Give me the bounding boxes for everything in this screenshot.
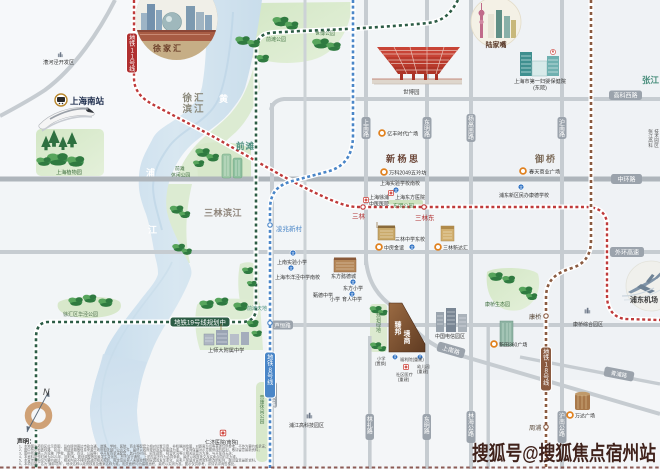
svg-text:沪南路: 沪南路 — [559, 119, 565, 139]
svg-text:臻邦: 臻邦 — [395, 320, 402, 336]
svg-text:上海东方医院: 上海东方医院 — [395, 194, 425, 201]
svg-text:搜狐号@搜狐焦点宿州站: 搜狐号@搜狐焦点宿州站 — [472, 441, 656, 465]
svg-text:浦江高科技园区: 浦江高科技园区 — [289, 422, 324, 429]
svg-text:新杨思: 新杨思 — [386, 153, 421, 164]
svg-text:林礼路: 林礼路 — [367, 416, 373, 436]
svg-text:上海实验学校南校: 上海实验学校南校 — [380, 180, 420, 187]
svg-text:上南实验小学: 上南实验小学 — [277, 259, 307, 266]
svg-text:康桥: 康桥 — [529, 313, 541, 321]
svg-text:(东院): (东院) — [533, 84, 547, 92]
svg-text:东明公园: 东明公园 — [393, 202, 414, 210]
svg-text:育人中学: 育人中学 — [342, 296, 362, 303]
svg-text:春天商业广场: 春天商业广场 — [529, 168, 560, 176]
svg-text:普康休闲公园: 普康休闲公园 — [260, 394, 265, 425]
svg-text:地铁19号线规划中: 地铁19号线规划中 — [174, 318, 226, 327]
svg-text:黄: 黄 — [219, 93, 228, 104]
svg-text:6、本项目推广名为"臻邦境商"，地块名称以政府核准及备案名称: 6、本项目推广名为"臻邦境商"，地块名称以政府核准及备案名称为准。相关面积均为建… — [19, 461, 237, 466]
svg-text:浦东机场: 浦东机场 — [630, 295, 658, 304]
svg-text:张江高科: 张江高科 — [648, 128, 653, 149]
svg-text:(重建): (重建) — [417, 368, 429, 375]
svg-text:徐家汇: 徐家汇 — [152, 43, 183, 53]
svg-text:甄德中学: 甄德中学 — [313, 292, 333, 299]
svg-text:东明路: 东明路 — [424, 416, 430, 436]
svg-text:浦东新区民办康德学校: 浦东新区民办康德学校 — [499, 192, 549, 199]
svg-text:世博公园: 世博公园 — [315, 30, 335, 37]
svg-text:上海南站: 上海南站 — [70, 96, 105, 106]
svg-text:浦: 浦 — [146, 167, 155, 178]
svg-text:东明路: 东明路 — [424, 119, 430, 139]
svg-text:(重建): (重建) — [398, 376, 410, 383]
svg-text:三林滨江: 三林滨江 — [204, 207, 242, 218]
svg-text:亿丰时代广场: 亿丰时代广场 — [387, 130, 418, 138]
svg-text:技术园区: 技术园区 — [654, 128, 659, 148]
svg-text:中房金谊: 中房金谊 — [384, 245, 404, 252]
svg-text:前滩天地: 前滩天地 — [247, 305, 267, 312]
svg-text:上南路: 上南路 — [363, 119, 369, 139]
svg-text:上海徐浦: 上海徐浦 — [369, 194, 389, 201]
svg-text:三林中学东校: 三林中学东校 — [395, 236, 425, 243]
svg-text:凌兆新村: 凌兆新村 — [276, 224, 303, 233]
svg-text:中环路: 中环路 — [617, 176, 635, 184]
svg-text:陆家嘴: 陆家嘴 — [486, 40, 507, 49]
svg-text:御桥: 御桥 — [534, 153, 557, 164]
svg-text:滨江: 滨江 — [182, 103, 205, 115]
svg-text:世博园: 世博园 — [403, 88, 420, 96]
svg-text:福利院(重建): 福利院(重建) — [400, 356, 424, 363]
svg-text:规划绿地: 规划绿地 — [376, 312, 381, 334]
svg-text:休闲公园: 休闲公园 — [171, 172, 190, 179]
svg-text:(置换): (置换) — [375, 360, 387, 367]
svg-text:上海市第一妇婴保健院: 上海市第一妇婴保健院 — [514, 77, 567, 85]
svg-text:万达广场: 万达广场 — [575, 413, 595, 420]
svg-text:高科西路: 高科西路 — [613, 92, 637, 100]
svg-text:N: N — [43, 387, 50, 397]
svg-text:徐汇: 徐汇 — [181, 92, 205, 104]
svg-text:康桥综合园区: 康桥综合园区 — [573, 321, 603, 328]
svg-text:中医医院: 中医医院 — [369, 201, 389, 208]
svg-text:康桥生态园: 康桥生态园 — [485, 301, 510, 308]
svg-text:芦恒路: 芦恒路 — [274, 322, 291, 330]
svg-text:中国电信园区: 中国电信园区 — [435, 333, 465, 340]
svg-text:三林: 三林 — [352, 212, 366, 221]
svg-text:林海公路: 林海公路 — [468, 412, 474, 438]
svg-text:境商: 境商 — [404, 329, 411, 345]
svg-text:上海植物园: 上海植物园 — [56, 168, 82, 176]
svg-text:三林新达汇: 三林新达汇 — [443, 245, 468, 252]
svg-text:前滩: 前滩 — [175, 165, 185, 172]
svg-text:徐汇区华泾公园: 徐汇区华泾公园 — [63, 311, 98, 318]
svg-text:新田360广场: 新田360广场 — [499, 342, 527, 349]
svg-text:三林东: 三林东 — [415, 213, 435, 222]
svg-text:前滩公园: 前滩公园 — [266, 36, 286, 43]
svg-text:漕河泾开发区: 漕河泾开发区 — [43, 58, 74, 66]
svg-text:外环高速: 外环高速 — [615, 249, 639, 257]
svg-text:上师大附属中学: 上师大附属中学 — [208, 346, 244, 354]
svg-text:张江: 张江 — [642, 75, 660, 85]
svg-text:周浦: 周浦 — [529, 424, 541, 432]
svg-text:前滩: 前滩 — [236, 141, 255, 151]
svg-text:万科2049五玲坊: 万科2049五玲坊 — [389, 169, 426, 177]
svg-text:沪南公路: 沪南公路 — [559, 412, 565, 438]
svg-text:上海市洋泾中学南校: 上海市洋泾中学南校 — [275, 274, 320, 281]
svg-text:杨高南路: 杨高南路 — [468, 115, 474, 141]
svg-text:东方小学: 东方小学 — [343, 285, 363, 292]
svg-text:江: 江 — [148, 224, 157, 235]
